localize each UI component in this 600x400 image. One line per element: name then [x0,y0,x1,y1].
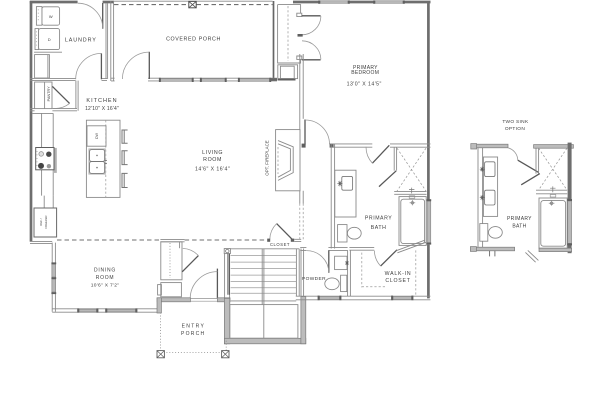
svg-text:OPTION: OPTION [505,126,525,132]
svg-text:BATH: BATH [371,225,387,231]
svg-text:DINING: DINING [94,268,116,274]
svg-text:D: D [48,37,51,42]
svg-text:LAUNDRY: LAUNDRY [65,37,97,43]
svg-text:12'10" X 16'4": 12'10" X 16'4" [85,106,119,112]
svg-text:CLOSET: CLOSET [385,278,410,284]
svg-text:FREEZER: FREEZER [44,215,48,228]
svg-text:LIVING: LIVING [202,150,223,156]
svg-text:TWO SINK: TWO SINK [502,119,529,125]
svg-text:PORCH: PORCH [181,331,205,337]
svg-text:13'0" X 14'5": 13'0" X 14'5" [347,82,382,88]
svg-text:DW: DW [95,132,99,138]
svg-text:WALK-IN: WALK-IN [385,271,412,277]
svg-text:COVERED PORCH: COVERED PORCH [166,36,221,42]
svg-text:REF /: REF / [39,218,43,225]
svg-text:ENTRY: ENTRY [182,324,206,330]
svg-text:14'6" X 16'4": 14'6" X 16'4" [195,166,230,172]
svg-text:CLOSET: CLOSET [270,242,290,247]
svg-text:PANTRY: PANTRY [47,86,51,102]
svg-text:ROOM: ROOM [203,157,222,163]
svg-text:ROOM: ROOM [96,275,115,281]
svg-text:W: W [49,14,53,19]
svg-text:BEDROOM: BEDROOM [351,70,379,76]
svg-text:POWDER: POWDER [302,276,326,282]
svg-text:PRIMARY: PRIMARY [365,215,392,221]
svg-text:BATH: BATH [512,223,526,229]
svg-text:PRIMARY: PRIMARY [507,216,532,222]
svg-text:OPT. FIREPLACE: OPT. FIREPLACE [265,140,270,175]
svg-text:KITCHEN: KITCHEN [86,98,117,104]
svg-text:10'6" X 7'2": 10'6" X 7'2" [91,283,120,289]
